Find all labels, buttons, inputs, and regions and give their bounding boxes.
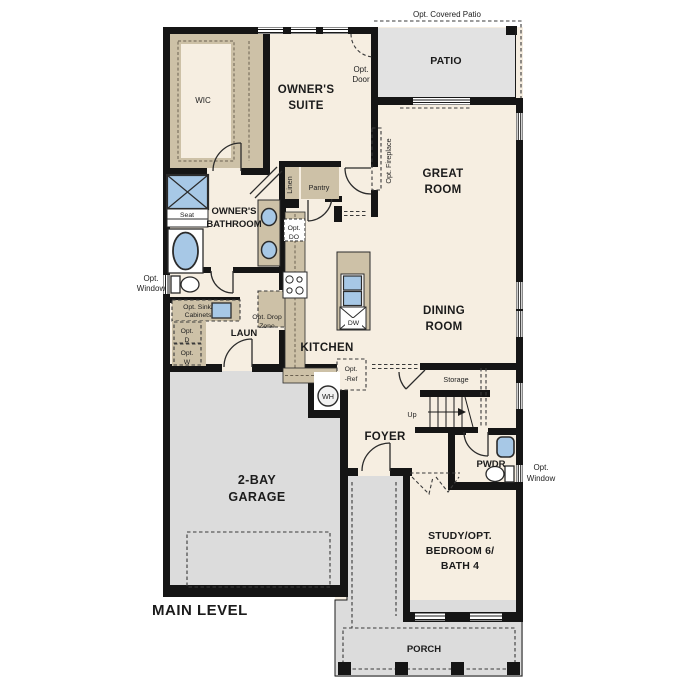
svg-text:Window: Window [137,284,166,293]
window [517,311,523,337]
label-laundry: LAUN [231,328,258,339]
svg-text:W: W [184,359,191,366]
label-water-heater: WH [322,392,334,401]
svg-text:D: D [185,337,190,344]
water-heater [314,372,340,410]
window [517,383,523,409]
label-linen: Linen [285,176,294,194]
label-opt-drop-zone: Opt. Drop [252,314,282,321]
svg-text:DO: DO [289,234,299,241]
window [323,28,348,34]
shower [167,175,208,227]
svg-text:-Ref: -Ref [345,376,358,383]
label-foyer: FOYER [364,431,406,443]
opt-ref-box [337,359,366,390]
label-opt-covered-patio: Opt. Covered Patio [413,10,482,19]
label-owners-suite: OWNER'S [278,84,335,96]
window [517,282,523,309]
label-kitchen: KITCHEN [300,342,353,354]
svg-text:Zone: Zone [259,323,275,330]
powder-sink [497,437,514,457]
vanity-double-sinks [258,200,280,266]
label-powder: PWDR [476,459,505,470]
window [415,614,445,621]
svg-text:SUITE: SUITE [288,100,323,112]
label-seat: Seat [180,212,194,219]
label-storage: Storage [443,375,468,384]
toilet [171,276,199,293]
floor-plan: WIC OWNER'S SUITE PATIO Opt. Covered Pat… [0,0,687,687]
label-up: Up [407,410,416,419]
svg-text:GARAGE: GARAGE [228,490,285,504]
bathtub [168,229,203,273]
svg-text:Cabinets: Cabinets [185,312,212,319]
label-dishwasher: DW [348,320,360,327]
floor-plan-drawing: WIC OWNER'S SUITE PATIO Opt. Covered Pat… [0,0,687,687]
label-opt-washer: Opt. [181,350,194,357]
porch-post [451,662,464,675]
label-wic: WIC [195,96,211,105]
label-opt-window-right: Opt. [533,463,548,472]
label-opt-do: Opt. [288,225,301,232]
label-opt-ref: Opt. [345,366,358,373]
svg-text:BEDROOM 6/: BEDROOM 6/ [426,545,495,557]
label-porch: PORCH [407,644,441,655]
label-owners-bathroom: OWNER'S [211,206,256,217]
porch-post [395,662,408,675]
window [470,614,502,621]
cooktop [283,272,307,298]
label-opt-door: Opt. [353,65,368,74]
svg-text:Window: Window [527,474,556,483]
room-porch [335,600,523,677]
svg-text:ROOM: ROOM [426,321,463,333]
label-main-level: MAIN LEVEL [152,602,248,619]
svg-text:Door: Door [352,75,370,84]
label-garage: 2-BAY [238,473,277,487]
kitchen-island [337,252,370,330]
label-dining-room: DINING [423,305,465,317]
porch-post [338,662,351,675]
label-study: STUDY/OPT. [428,530,492,542]
island-sink [344,292,362,306]
label-opt-dryer: Opt. [181,328,194,335]
window [291,28,316,34]
label-great-room: GREAT [423,168,464,180]
island-sink [344,276,362,290]
label-opt-fireplace: Opt. Fireplace [384,138,393,183]
wic-closet [170,34,263,168]
label-opt-window-left: Opt. [143,274,158,283]
label-patio: PATIO [430,55,462,67]
window [517,113,523,140]
porch-post [507,662,520,675]
window [517,465,523,482]
label-pantry: Pantry [309,183,330,192]
svg-text:ROOM: ROOM [425,184,462,196]
label-opt-sink-cabinets: Opt. Sink/ [183,304,213,311]
laundry-sink [212,303,231,318]
window [258,28,283,34]
svg-text:BATH 4: BATH 4 [441,560,479,572]
svg-text:BATHROOM: BATHROOM [206,219,261,230]
